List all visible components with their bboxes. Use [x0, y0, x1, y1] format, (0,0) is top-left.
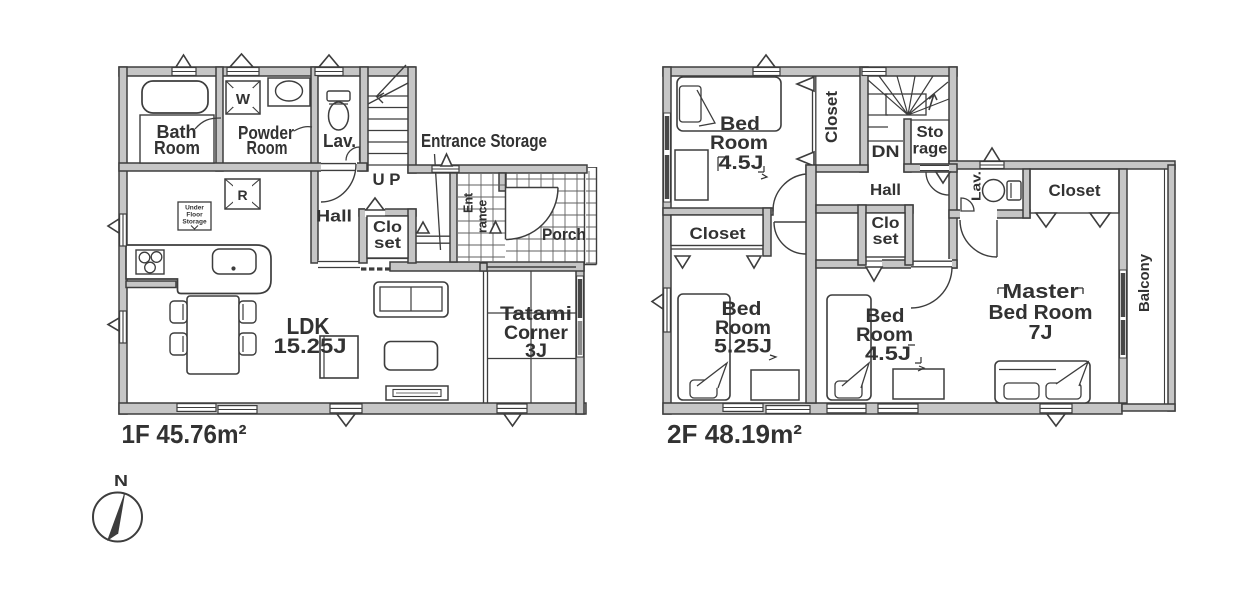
svg-text:R: R	[237, 187, 247, 203]
svg-text:Hall: Hall	[870, 182, 901, 199]
svg-text:Tatami: Tatami	[500, 304, 572, 325]
svg-text:Entrance Storage: Entrance Storage	[421, 131, 547, 151]
svg-text:2F 48.19m²: 2F 48.19m²	[667, 419, 802, 449]
svg-text:Clo: Clo	[373, 219, 402, 236]
svg-text:Sto: Sto	[917, 124, 944, 141]
svg-text:set: set	[873, 231, 900, 248]
svg-text:Room: Room	[154, 138, 200, 158]
svg-text:1F 45.76m²: 1F 45.76m²	[122, 419, 247, 449]
svg-text:Closet: Closet	[1049, 181, 1101, 200]
svg-text:7J: 7J	[1029, 322, 1053, 344]
svg-text:Under: Under	[185, 205, 204, 212]
svg-text:rance: rance	[476, 200, 490, 233]
svg-text:Closet: Closet	[822, 91, 841, 143]
svg-text:Floor: Floor	[186, 212, 203, 219]
svg-text:Room: Room	[247, 138, 288, 158]
svg-text:Storage: Storage	[182, 219, 207, 226]
svg-text:Hall: Hall	[316, 207, 352, 226]
svg-text:W: W	[236, 91, 251, 108]
svg-text:Porch: Porch	[542, 225, 586, 244]
svg-text:set: set	[374, 235, 402, 252]
svg-text:5.25J: 5.25J	[714, 337, 772, 358]
svg-text:N: N	[114, 473, 128, 490]
svg-text:Master: Master	[1003, 281, 1079, 303]
svg-text:DN: DN	[872, 142, 900, 161]
svg-text:Bed: Bed	[720, 114, 760, 135]
svg-text:Bed: Bed	[866, 306, 905, 327]
svg-text:Clo: Clo	[872, 215, 900, 232]
svg-text:rage: rage	[913, 141, 948, 158]
svg-text:15.25J: 15.25J	[274, 335, 347, 358]
svg-text:Room: Room	[856, 325, 913, 346]
svg-text:U P: U P	[373, 170, 401, 189]
svg-text:Lav.: Lav.	[323, 131, 356, 151]
svg-text:3J: 3J	[525, 341, 547, 362]
svg-text:4.5J: 4.5J	[865, 344, 911, 365]
svg-text:Balcony: Balcony	[1136, 253, 1153, 312]
svg-text:4.5J: 4.5J	[719, 153, 764, 174]
svg-text:Room: Room	[710, 133, 768, 154]
svg-text:Closet: Closet	[690, 224, 746, 243]
svg-text:Bed Room: Bed Room	[989, 302, 1093, 324]
svg-text:Bed: Bed	[722, 299, 762, 320]
svg-text:Lav.: Lav.	[969, 171, 984, 201]
svg-text:Ent: Ent	[462, 192, 476, 213]
